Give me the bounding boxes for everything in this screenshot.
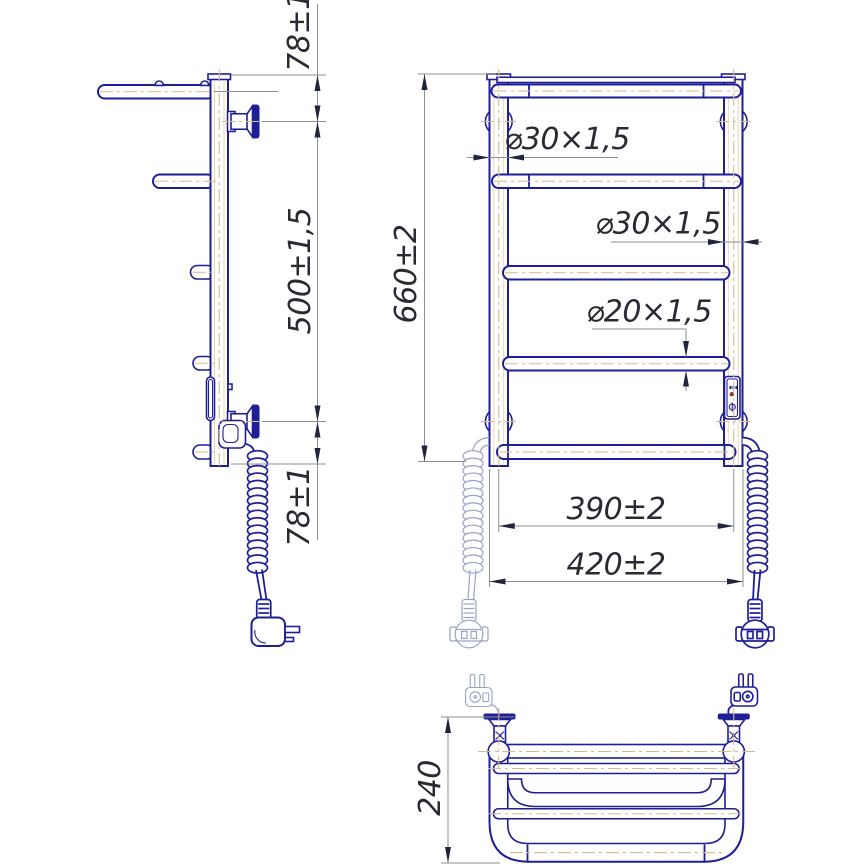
dim-overall-width: 420±2	[567, 548, 666, 583]
front-heater-control	[725, 377, 741, 420]
dim-left-stand-tube: ⌀30×1,5	[504, 122, 630, 157]
front-power-plug-right	[736, 620, 774, 648]
top-view	[466, 674, 758, 862]
front-cable-connector-left	[462, 600, 476, 622]
front-coiled-cable-left	[463, 451, 483, 573]
front-power-plug-left	[450, 620, 488, 648]
dim-shelf-depth: 240	[413, 760, 448, 816]
dim-side-bracket-spacing: 500±1,5	[283, 208, 318, 335]
dim-overall-height: 660±2	[389, 225, 424, 324]
side-shelf-crossbar-end	[155, 81, 163, 85]
top-power-plug-left	[466, 675, 493, 707]
side-coiled-cable	[248, 451, 268, 573]
side-power-plug	[252, 618, 300, 647]
side-plug-prong	[285, 627, 300, 633]
dim-side-bottom-offset: 78±1	[282, 466, 317, 546]
dim-rung-tube: ⌀20×1,5	[586, 295, 712, 330]
front-cable-connector-right	[748, 600, 762, 622]
technical-drawing-canvas: 78±1 500±1,5 78±1 660±2 ⌀30×1,5 ⌀30×1,5 …	[0, 0, 868, 868]
side-view	[98, 69, 300, 646]
top-cable-right	[728, 706, 733, 714]
side-heater-element	[207, 377, 215, 421]
side-shelf-crossbar-end	[201, 81, 209, 85]
front-coiled-cable-right	[748, 451, 768, 573]
front-shelf-crossbar	[497, 77, 735, 82]
side-cable-gland	[228, 384, 232, 390]
top-cable-left	[491, 705, 499, 714]
side-cable	[246, 444, 254, 451]
side-cable-wire	[256, 570, 262, 600]
dim-side-top-offset: 78±1	[282, 0, 317, 72]
top-wall-flange-left	[484, 714, 516, 743]
dim-stand-spacing: 390±2	[567, 492, 666, 527]
top-power-plug-right	[731, 674, 758, 706]
dim-right-stand-tube: ⌀30×1,5	[595, 207, 721, 242]
